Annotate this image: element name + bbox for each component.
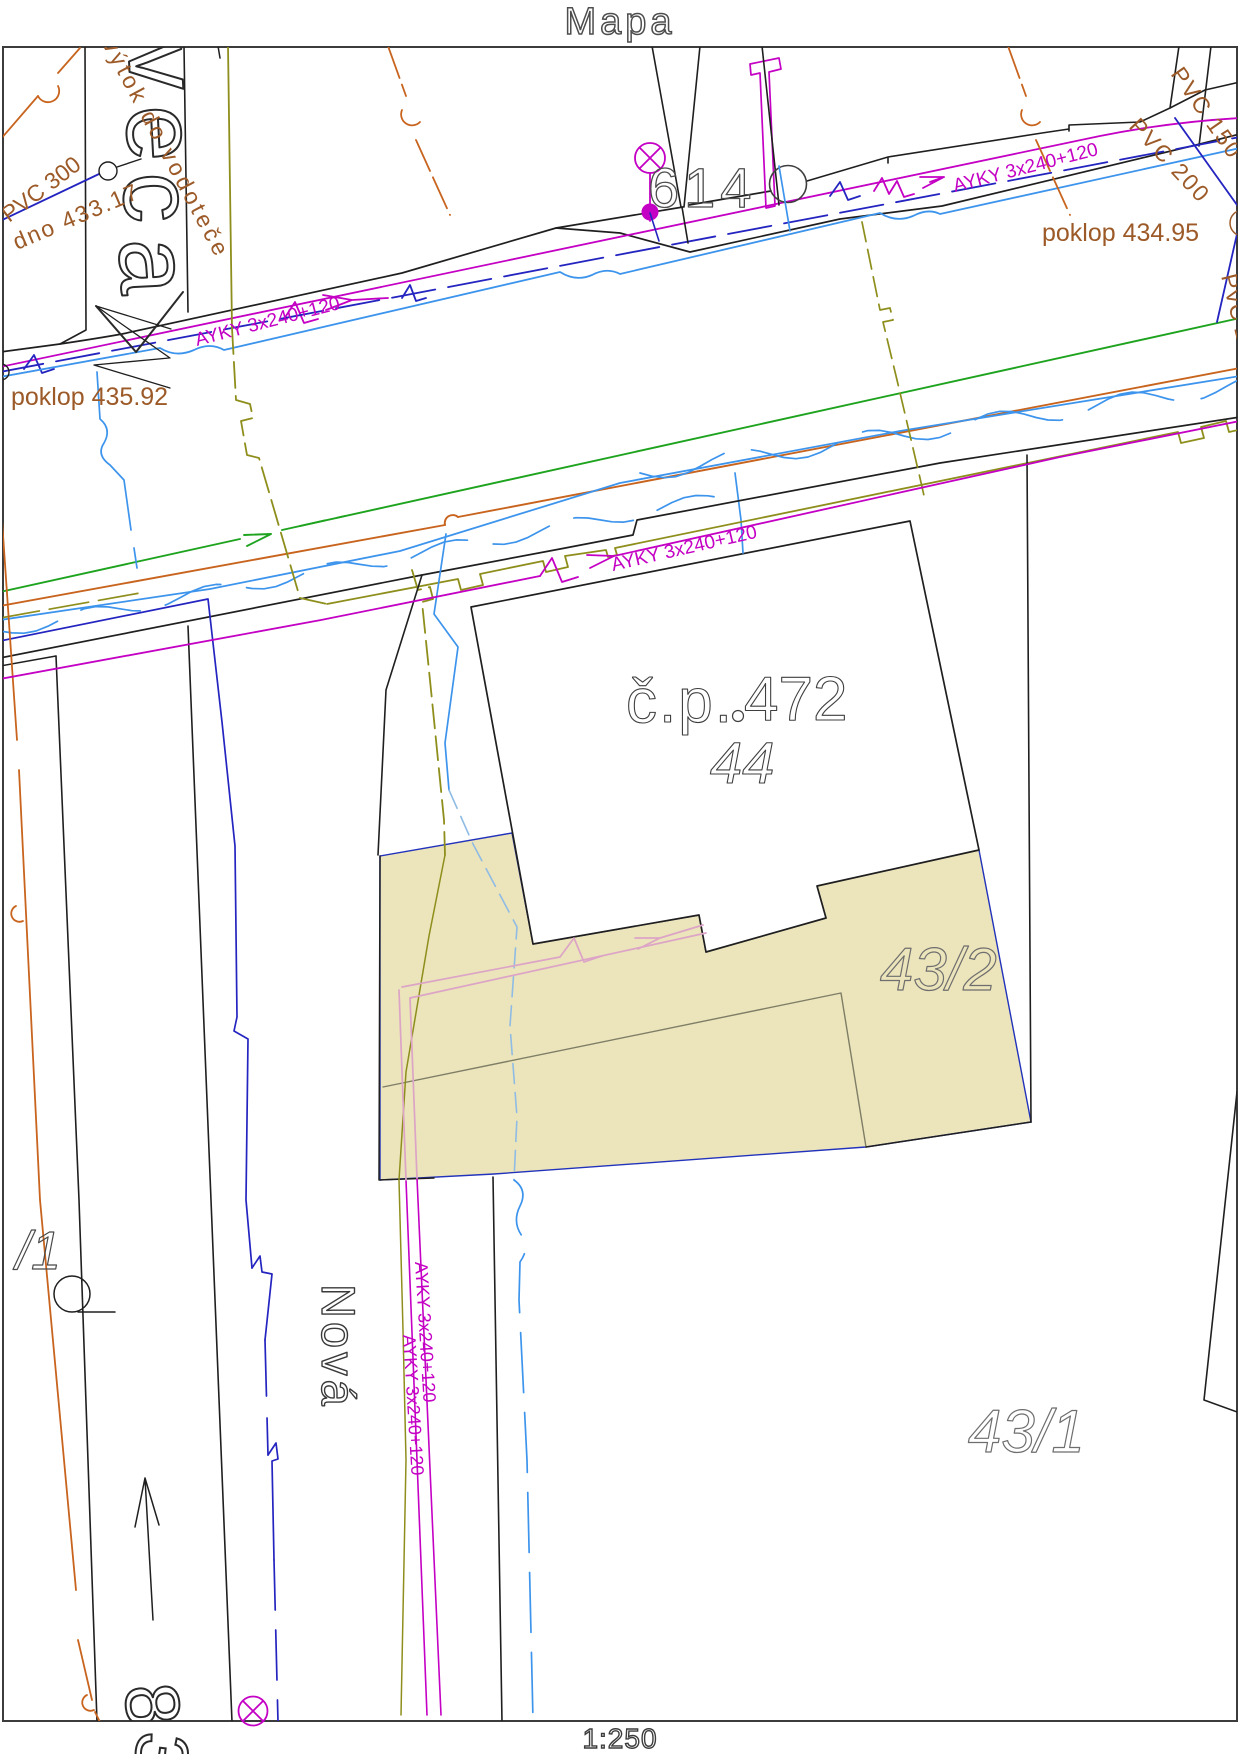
svg-text:614: 614 <box>648 156 756 219</box>
svg-text:č.p.: č.p. <box>626 667 734 736</box>
svg-text:472: 472 <box>744 665 847 734</box>
svg-text:Nová: Nová <box>312 1284 365 1410</box>
svg-text:43/2: 43/2 <box>880 936 997 1003</box>
svg-text:Mapa: Mapa <box>564 1 675 43</box>
svg-text:1:250: 1:250 <box>582 1723 657 1754</box>
svg-text:poklop 435.92: poklop 435.92 <box>11 383 168 411</box>
svg-text:/1: /1 <box>12 1221 61 1281</box>
svg-text:a: a <box>97 235 212 297</box>
svg-text:44: 44 <box>710 731 775 796</box>
svg-text:43/1: 43/1 <box>968 1398 1085 1465</box>
svg-text:poklop 434.95: poklop 434.95 <box>1042 219 1199 247</box>
